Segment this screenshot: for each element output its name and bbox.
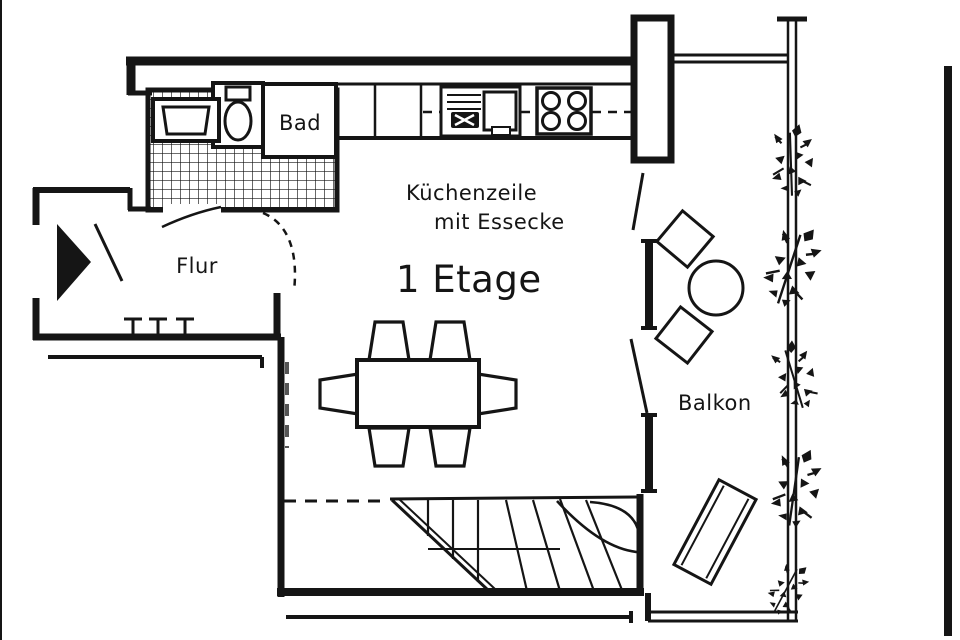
dining-chair (320, 374, 358, 414)
plant-icon (767, 337, 823, 414)
dining-chair (430, 322, 470, 360)
kitchen-sink-icon (441, 87, 520, 136)
toilet-tank (226, 87, 250, 100)
wall-column (634, 18, 671, 160)
dining-table (357, 360, 479, 427)
staircase (284, 497, 641, 591)
coat-hooks-icon (124, 319, 194, 336)
entrance-door-leaf (95, 224, 122, 281)
room-label-flur: Flur (176, 254, 218, 278)
stove-icon (537, 88, 591, 134)
door-swing-upper (633, 173, 643, 230)
room-label-balkon: Balkon (678, 391, 752, 415)
kitchen-counter (337, 84, 636, 138)
stair-treads (428, 499, 622, 591)
dining-set (320, 322, 516, 466)
hall-door-swing (263, 213, 295, 291)
dining-chair (369, 322, 409, 360)
balcony-chair (656, 307, 712, 363)
balcony-table (689, 261, 743, 315)
kitchen-label-line1: Küchenzeile (406, 181, 537, 205)
plants (756, 124, 828, 620)
dining-chair (430, 428, 470, 466)
floor-title: 1 Etage (396, 258, 542, 301)
page-edge-left (0, 0, 2, 640)
dining-chair (478, 374, 516, 414)
plant-icon (772, 124, 813, 196)
door-swing-lower (631, 339, 647, 413)
entrance-arrow-icon (57, 224, 91, 301)
wall-heavy-right (944, 66, 952, 636)
dining-chair (369, 428, 409, 466)
floorplan-page: Bad Flur Küchenzeile mit Essecke 1 Etage… (0, 0, 960, 640)
balcony-chair (657, 211, 713, 267)
sun-lounger (674, 480, 756, 584)
kitchen-label-line2: mit Essecke (434, 210, 565, 234)
toilet-icon (225, 102, 251, 140)
bathroom (148, 83, 337, 227)
basin-icon (163, 107, 209, 134)
floorplan-svg: Bad Flur Küchenzeile mit Essecke 1 Etage… (0, 0, 960, 640)
plant-icon (756, 219, 828, 313)
room-label-bad: Bad (279, 111, 321, 135)
